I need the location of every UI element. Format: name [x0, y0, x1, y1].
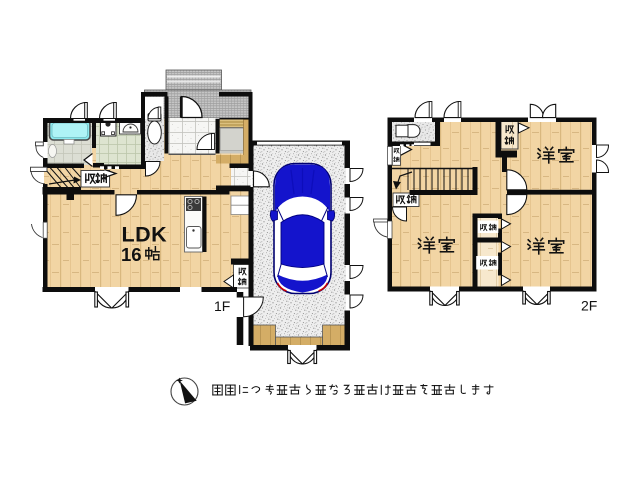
- svg-text:2F: 2F: [581, 298, 597, 314]
- svg-text:16: 16: [121, 244, 142, 265]
- svg-text:LDK: LDK: [122, 223, 168, 247]
- svg-text:1F: 1F: [214, 298, 230, 314]
